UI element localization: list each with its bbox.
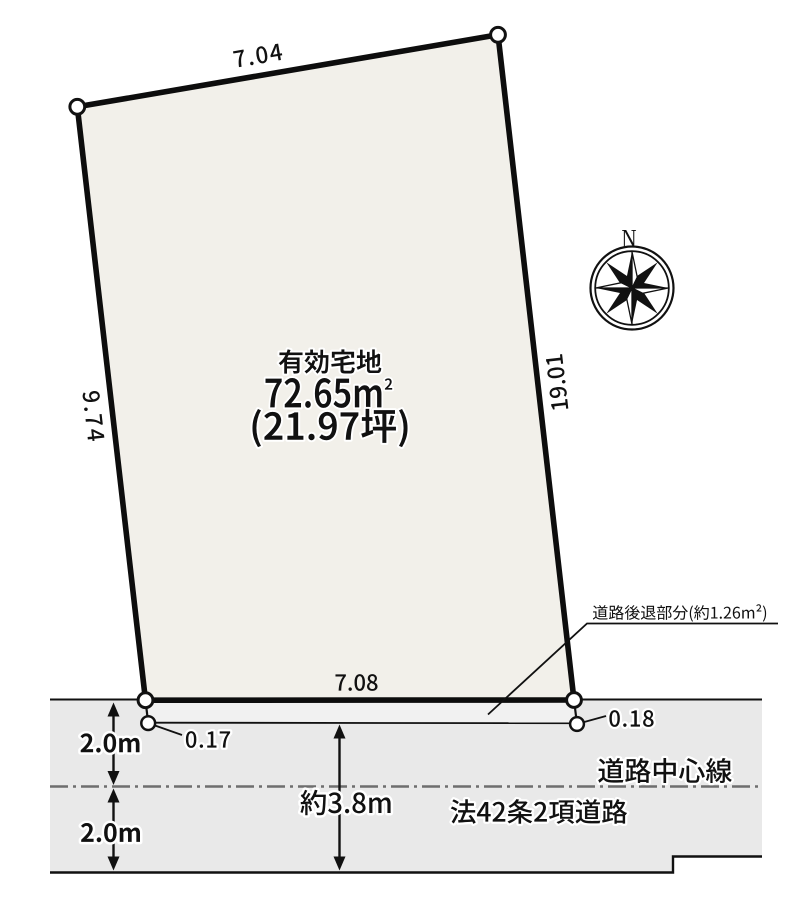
svg-text:N: N <box>621 225 636 254</box>
